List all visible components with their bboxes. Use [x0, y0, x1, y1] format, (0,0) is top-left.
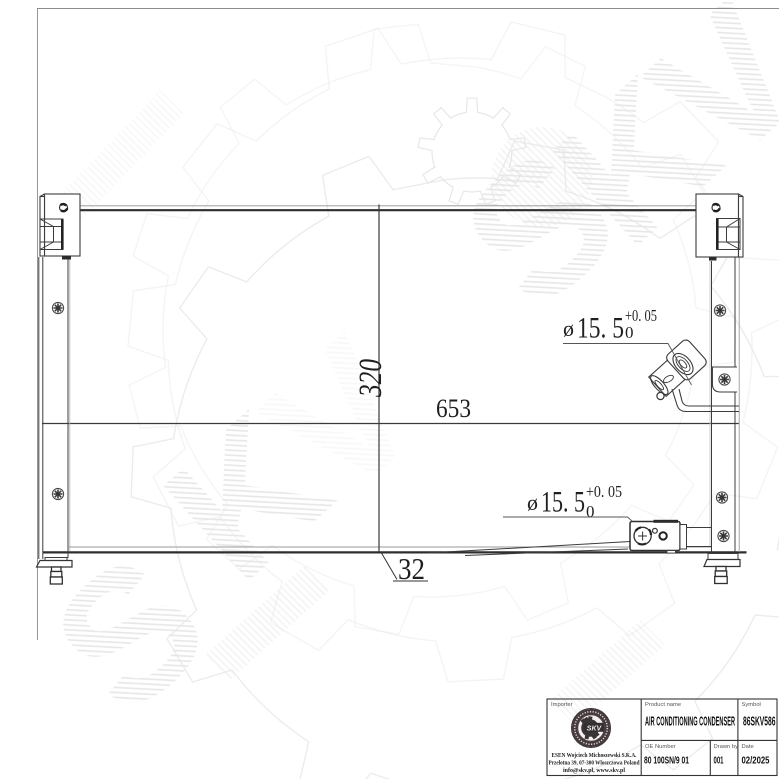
svg-text:001: 001 — [714, 755, 724, 767]
svg-text:0: 0 — [586, 502, 595, 521]
svg-text:80 100SN/9 01: 80 100SN/9 01 — [644, 755, 689, 767]
svg-text:Drawn by: Drawn by — [714, 744, 739, 750]
svg-text:ø: ø — [527, 490, 538, 515]
svg-text:ESEN Wojciech Michoszewski S.K: ESEN Wojciech Michoszewski S.K.A. — [552, 752, 637, 759]
svg-text:0: 0 — [625, 323, 634, 342]
svg-text:Date: Date — [742, 744, 754, 750]
svg-text:320: 320 — [353, 359, 389, 398]
svg-text:86SKV586: 86SKV586 — [743, 715, 776, 729]
svg-text:02/2025: 02/2025 — [742, 755, 770, 767]
svg-text:Symbol: Symbol — [742, 702, 761, 708]
svg-text:info@skv.pl, www.skv.pl: info@skv.pl, www.skv.pl — [563, 767, 625, 774]
svg-text:Product name: Product name — [645, 702, 681, 708]
svg-text:AIR CONDITIONING CONDENSER: AIR CONDITIONING CONDENSER — [645, 715, 735, 729]
svg-text:+0. 05: +0. 05 — [586, 482, 622, 501]
svg-text:Importer: Importer — [551, 702, 573, 708]
svg-text:SKV: SKV — [587, 725, 603, 732]
svg-text:Przelotna 39, 07-300 Wloszczow: Przelotna 39, 07-300 Wloszczowa Poland — [549, 760, 640, 767]
svg-text:OE Number: OE Number — [645, 744, 676, 750]
svg-text:ø: ø — [563, 316, 574, 341]
svg-text:653: 653 — [436, 393, 471, 423]
svg-text:15. 5: 15. 5 — [541, 486, 585, 519]
svg-text:15. 5: 15. 5 — [577, 312, 624, 345]
